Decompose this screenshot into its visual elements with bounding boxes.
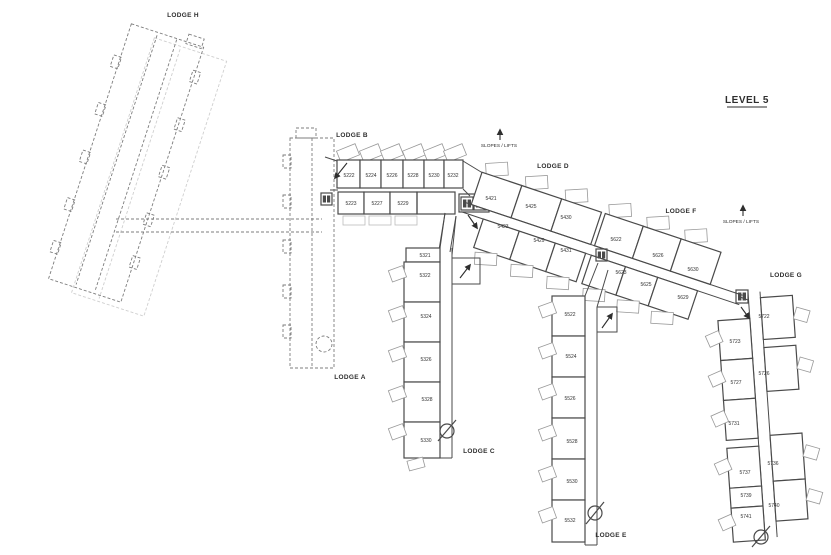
room-label: 5622 bbox=[610, 237, 621, 243]
room-label: 5223 bbox=[345, 201, 356, 207]
lodge-h-bumps bbox=[50, 45, 201, 279]
room-label: 5739 bbox=[740, 493, 751, 499]
stair-arrow-icon bbox=[741, 307, 749, 318]
room bbox=[764, 345, 799, 391]
lodge-b-building bbox=[321, 144, 486, 225]
room-label: 5230 bbox=[428, 173, 439, 179]
room-label: 5737 bbox=[739, 470, 750, 476]
room-label: 5227 bbox=[371, 201, 382, 207]
room-label: 5528 bbox=[566, 439, 577, 445]
room-label: 5629 bbox=[677, 295, 688, 301]
lodge-a-building bbox=[283, 128, 334, 368]
corridor-b-c bbox=[439, 213, 456, 252]
room-label: 5224 bbox=[365, 173, 376, 179]
lift-icon bbox=[321, 193, 332, 205]
lodge-b-lower-balconies bbox=[343, 216, 417, 225]
room-label: 5425 bbox=[525, 204, 536, 210]
room-label: 5740 bbox=[768, 503, 779, 509]
room-label: 5741 bbox=[740, 514, 751, 520]
room bbox=[417, 192, 455, 214]
room-label: 5321 bbox=[419, 253, 430, 259]
door-slash-icon bbox=[438, 420, 456, 441]
lodge-a-label: LODGE A bbox=[334, 374, 365, 381]
room-label: 5322 bbox=[419, 273, 430, 279]
stair-arrow-icon bbox=[602, 314, 612, 328]
room-label: 5330 bbox=[420, 438, 431, 444]
room-label: 5229 bbox=[397, 201, 408, 207]
room-label: 5722 bbox=[758, 314, 769, 320]
room-label: 5431 bbox=[560, 248, 571, 254]
room-label: 5625 bbox=[640, 282, 651, 288]
lodge-g-rooms-right bbox=[760, 295, 808, 521]
room bbox=[723, 398, 758, 440]
room-label: 5328 bbox=[421, 397, 432, 403]
slopes-lifts-label: SLOPES / LIFTS bbox=[481, 143, 517, 149]
lodge-d-label: LODGE D bbox=[537, 163, 569, 170]
room-label: 5430 bbox=[560, 215, 571, 221]
room-label: 5727 bbox=[730, 380, 741, 386]
floor-plan: LODGE H LODGE A bbox=[0, 0, 831, 555]
lodge-f-label: LODGE F bbox=[666, 208, 697, 215]
room-label: 5228 bbox=[407, 173, 418, 179]
room-label: 5522 bbox=[564, 312, 575, 318]
room-label: 5630 bbox=[687, 267, 698, 273]
lodge-h-building bbox=[42, 14, 211, 304]
room-label: 5623 bbox=[615, 270, 626, 276]
room-label: 5421 bbox=[485, 196, 496, 202]
room-label: 5324 bbox=[420, 314, 431, 320]
room bbox=[404, 262, 440, 302]
slopes-lifts-1: SLOPES / LIFTS bbox=[481, 130, 517, 149]
room-label: 5226 bbox=[386, 173, 397, 179]
room bbox=[773, 479, 808, 521]
lodge-g-rooms-left bbox=[718, 318, 765, 542]
room bbox=[404, 302, 440, 342]
lodge-c-rooms bbox=[404, 248, 440, 458]
room-label: 5526 bbox=[564, 396, 575, 402]
slopes-lifts-2: SLOPES / LIFTS bbox=[723, 206, 759, 225]
lodge-e-building bbox=[538, 263, 617, 545]
lodge-c-building bbox=[388, 213, 480, 471]
corridor-h-a bbox=[116, 219, 322, 232]
floor-plan-page: LODGE H LODGE A bbox=[0, 0, 831, 555]
slopes-lifts-label: SLOPES / LIFTS bbox=[723, 219, 759, 225]
room-label: 5530 bbox=[566, 479, 577, 485]
level-title: LEVEL 5 bbox=[725, 95, 769, 106]
room-label: 5731 bbox=[728, 421, 739, 427]
room bbox=[727, 446, 762, 488]
room-label: 5222 bbox=[343, 173, 354, 179]
room-label: 5736 bbox=[767, 461, 778, 467]
stair-arrow-icon bbox=[460, 265, 470, 278]
room-label: 5423 bbox=[497, 224, 508, 230]
lodge-e-rooms bbox=[552, 296, 585, 542]
room-label: 5524 bbox=[565, 354, 576, 360]
room-label: 5326 bbox=[420, 357, 431, 363]
lodge-b-label: LODGE B bbox=[336, 132, 368, 139]
room-label: 5232 bbox=[447, 173, 458, 179]
level-title-group: LEVEL 5 bbox=[725, 95, 769, 107]
lodge-b-rooms-top bbox=[337, 160, 463, 188]
door-slash-icon bbox=[586, 502, 604, 524]
room-label: 5532 bbox=[564, 518, 575, 524]
room bbox=[770, 433, 805, 481]
room-label: 5723 bbox=[729, 339, 740, 345]
lodge-g-label: LODGE G bbox=[770, 272, 802, 279]
lodge-d-f-wing bbox=[447, 153, 759, 348]
room-label: 5626 bbox=[652, 253, 663, 259]
lodge-h-ghost-outline bbox=[72, 38, 227, 316]
lodge-c-label: LODGE C bbox=[463, 448, 495, 455]
room-label: 5726 bbox=[758, 371, 769, 377]
room-label: 5429 bbox=[533, 238, 544, 244]
lodge-h-label: LODGE H bbox=[167, 12, 199, 19]
lift-icon bbox=[736, 290, 748, 303]
lodge-e-label: LODGE E bbox=[595, 532, 627, 539]
lodge-g-building bbox=[702, 288, 825, 543]
